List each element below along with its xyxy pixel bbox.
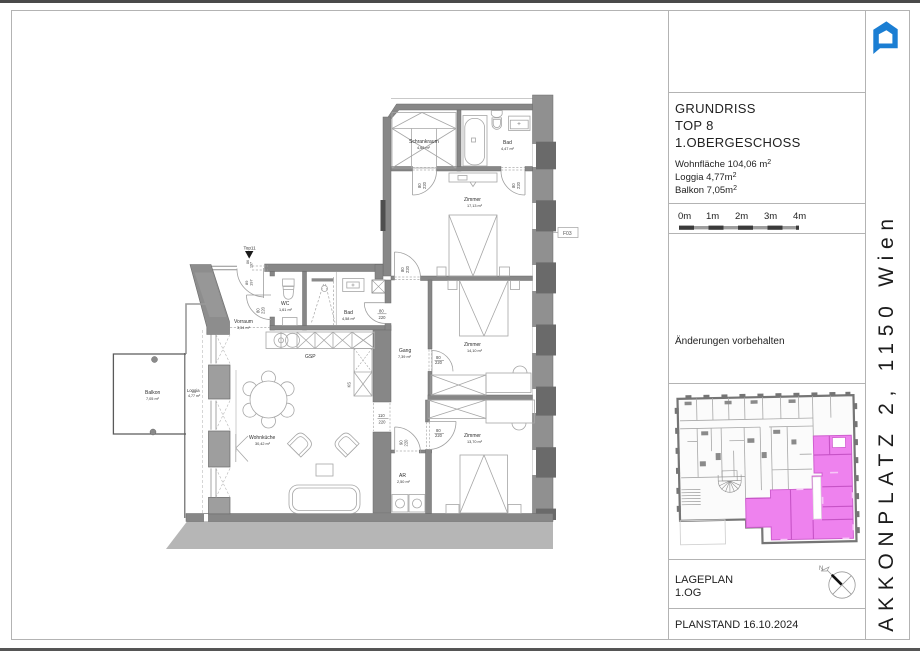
svg-text:KS: KS <box>347 382 352 388</box>
svg-text:N: N <box>819 566 823 572</box>
svg-text:WC: WC <box>281 301 290 307</box>
svg-text:14,10 m²: 14,10 m² <box>467 349 483 353</box>
svg-text:Vorraum: Vorraum <box>234 319 253 325</box>
svg-text:Wohnküche: Wohnküche <box>249 435 276 441</box>
svg-text:4,77 m²: 4,77 m² <box>188 394 201 398</box>
svg-text:220: 220 <box>405 265 410 273</box>
svg-text:Balkon: Balkon <box>145 390 161 396</box>
svg-text:3,54 m²: 3,54 m² <box>237 326 251 330</box>
svg-text:4,62 m²: 4,62 m² <box>417 146 431 150</box>
svg-text:197: 197 <box>249 279 254 286</box>
svg-text:220: 220 <box>379 420 387 425</box>
svg-text:AR: AR <box>399 473 406 479</box>
svg-text:1,61 m²: 1,61 m² <box>279 308 293 312</box>
svg-text:Zimmer: Zimmer <box>464 342 481 348</box>
svg-text:197: 197 <box>250 262 254 268</box>
svg-text:Gang: Gang <box>399 348 411 354</box>
svg-text:Zimmer: Zimmer <box>464 197 481 203</box>
svg-text:220: 220 <box>404 439 409 447</box>
svg-text:110: 110 <box>378 413 385 418</box>
svg-text:F03: F03 <box>563 231 572 237</box>
svg-text:Bad: Bad <box>503 140 512 146</box>
svg-text:80: 80 <box>379 309 384 314</box>
svg-text:220: 220 <box>261 306 266 314</box>
svg-text:4,58 m²: 4,58 m² <box>342 317 356 321</box>
svg-text:220: 220 <box>435 433 443 438</box>
svg-text:Zimmer: Zimmer <box>464 433 481 439</box>
svg-text:4,47 m²: 4,47 m² <box>501 147 515 151</box>
svg-text:17,13 m²: 17,13 m² <box>467 204 483 208</box>
svg-text:7,39 m²: 7,39 m² <box>398 355 412 359</box>
svg-text:7,05 m²: 7,05 m² <box>146 397 160 401</box>
svg-text:Bad: Bad <box>344 310 353 316</box>
svg-text:13,70 m²: 13,70 m² <box>467 440 483 444</box>
svg-text:220: 220 <box>422 181 427 189</box>
svg-text:220: 220 <box>435 360 443 365</box>
svg-text:Schrankraum: Schrankraum <box>409 139 439 145</box>
svg-text:220: 220 <box>516 181 521 189</box>
svg-text:GSP: GSP <box>305 354 316 360</box>
svg-text:220: 220 <box>379 315 387 320</box>
svg-text:Loggia: Loggia <box>187 388 200 393</box>
svg-text:2,50 m²: 2,50 m² <box>397 480 411 484</box>
svg-text:30,42 m²: 30,42 m² <box>255 442 271 446</box>
svg-text:Top11: Top11 <box>244 246 257 251</box>
